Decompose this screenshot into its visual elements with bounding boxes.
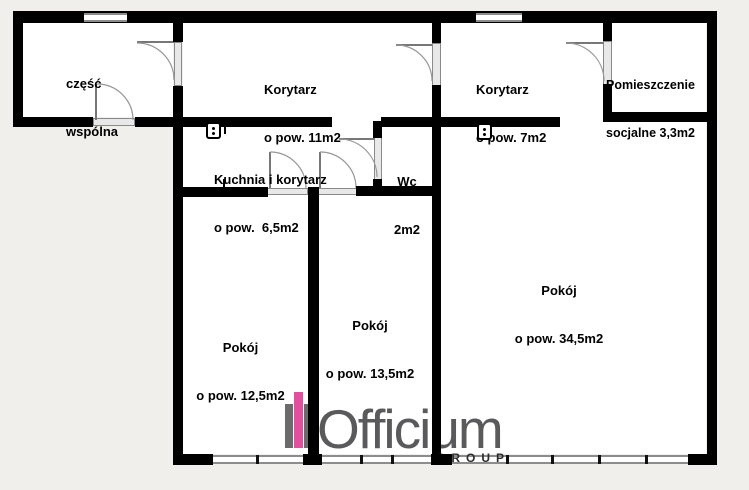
electrical-socket-icon	[477, 123, 492, 140]
wall	[603, 112, 717, 122]
wall	[173, 117, 332, 127]
room-label-pokoj-34: Pokój o pow. 34,5m2	[509, 251, 609, 379]
window-mullion	[551, 455, 554, 464]
switch-mark	[223, 179, 225, 187]
floor-plan: Officium GROUP część wsp	[0, 0, 749, 490]
wall	[381, 117, 433, 127]
wall	[688, 454, 717, 465]
room-area: socjalne 3,3m2	[606, 125, 695, 141]
door-panel	[396, 44, 432, 46]
room-label-pomieszczenie-socjalne: Pomieszczenie socjalne 3,3m2	[606, 45, 695, 173]
door-sill	[174, 42, 182, 86]
window-mullion	[645, 455, 648, 464]
window	[213, 455, 303, 464]
wall	[603, 84, 612, 122]
window-mullion	[256, 455, 259, 464]
door-sill	[374, 137, 382, 180]
room-name: część	[66, 76, 118, 92]
window-mullion	[391, 455, 394, 464]
wall	[173, 11, 183, 42]
room-label-korytarz-7: Korytarz o pow. 7m2	[476, 50, 546, 178]
wall	[431, 454, 452, 465]
door-sill	[432, 43, 441, 86]
window	[322, 455, 431, 464]
wall	[13, 117, 93, 127]
room-name: Pokój	[320, 318, 420, 334]
door-panel	[339, 138, 375, 140]
wall	[356, 186, 433, 196]
wall	[13, 11, 23, 127]
wall	[603, 23, 612, 41]
room-name: Pokój	[190, 340, 291, 356]
electrical-socket-icon	[206, 122, 221, 139]
wall	[173, 187, 268, 197]
door-panel	[137, 41, 174, 43]
room-name: Korytarz	[476, 82, 546, 98]
room-name: Kuchnia i korytarz	[214, 172, 327, 188]
room-name: Korytarz	[264, 82, 341, 98]
wall	[707, 11, 717, 465]
door-panel	[566, 42, 604, 44]
wall	[432, 85, 441, 455]
room-area: o pow. 34,5m2	[509, 331, 609, 347]
window	[84, 13, 127, 22]
room-label-pokoj-12: Pokój o pow. 12,5m2	[190, 308, 291, 436]
room-name: Pokój	[509, 283, 609, 299]
room-area: 2m2	[384, 222, 430, 238]
wall	[432, 23, 441, 43]
wall	[173, 454, 213, 465]
window	[476, 13, 522, 22]
wall	[308, 187, 319, 465]
switch-mark	[224, 125, 226, 134]
room-name: Pomieszczenie	[606, 77, 695, 93]
room-area: o pow. 13,5m2	[320, 366, 420, 382]
room-label-czesc-wspolna: część wspólna	[66, 44, 118, 172]
window-mullion	[360, 455, 363, 464]
window-mullion	[598, 455, 601, 464]
room-label-pokoj-13: Pokój o pow. 13,5m2	[320, 286, 420, 414]
wall	[432, 117, 560, 127]
logo-bar-accent	[294, 392, 303, 448]
room-area: o pow. 12,5m2	[190, 388, 291, 404]
wall	[173, 86, 183, 465]
room-label-wc: Wc 2m2	[384, 142, 430, 270]
